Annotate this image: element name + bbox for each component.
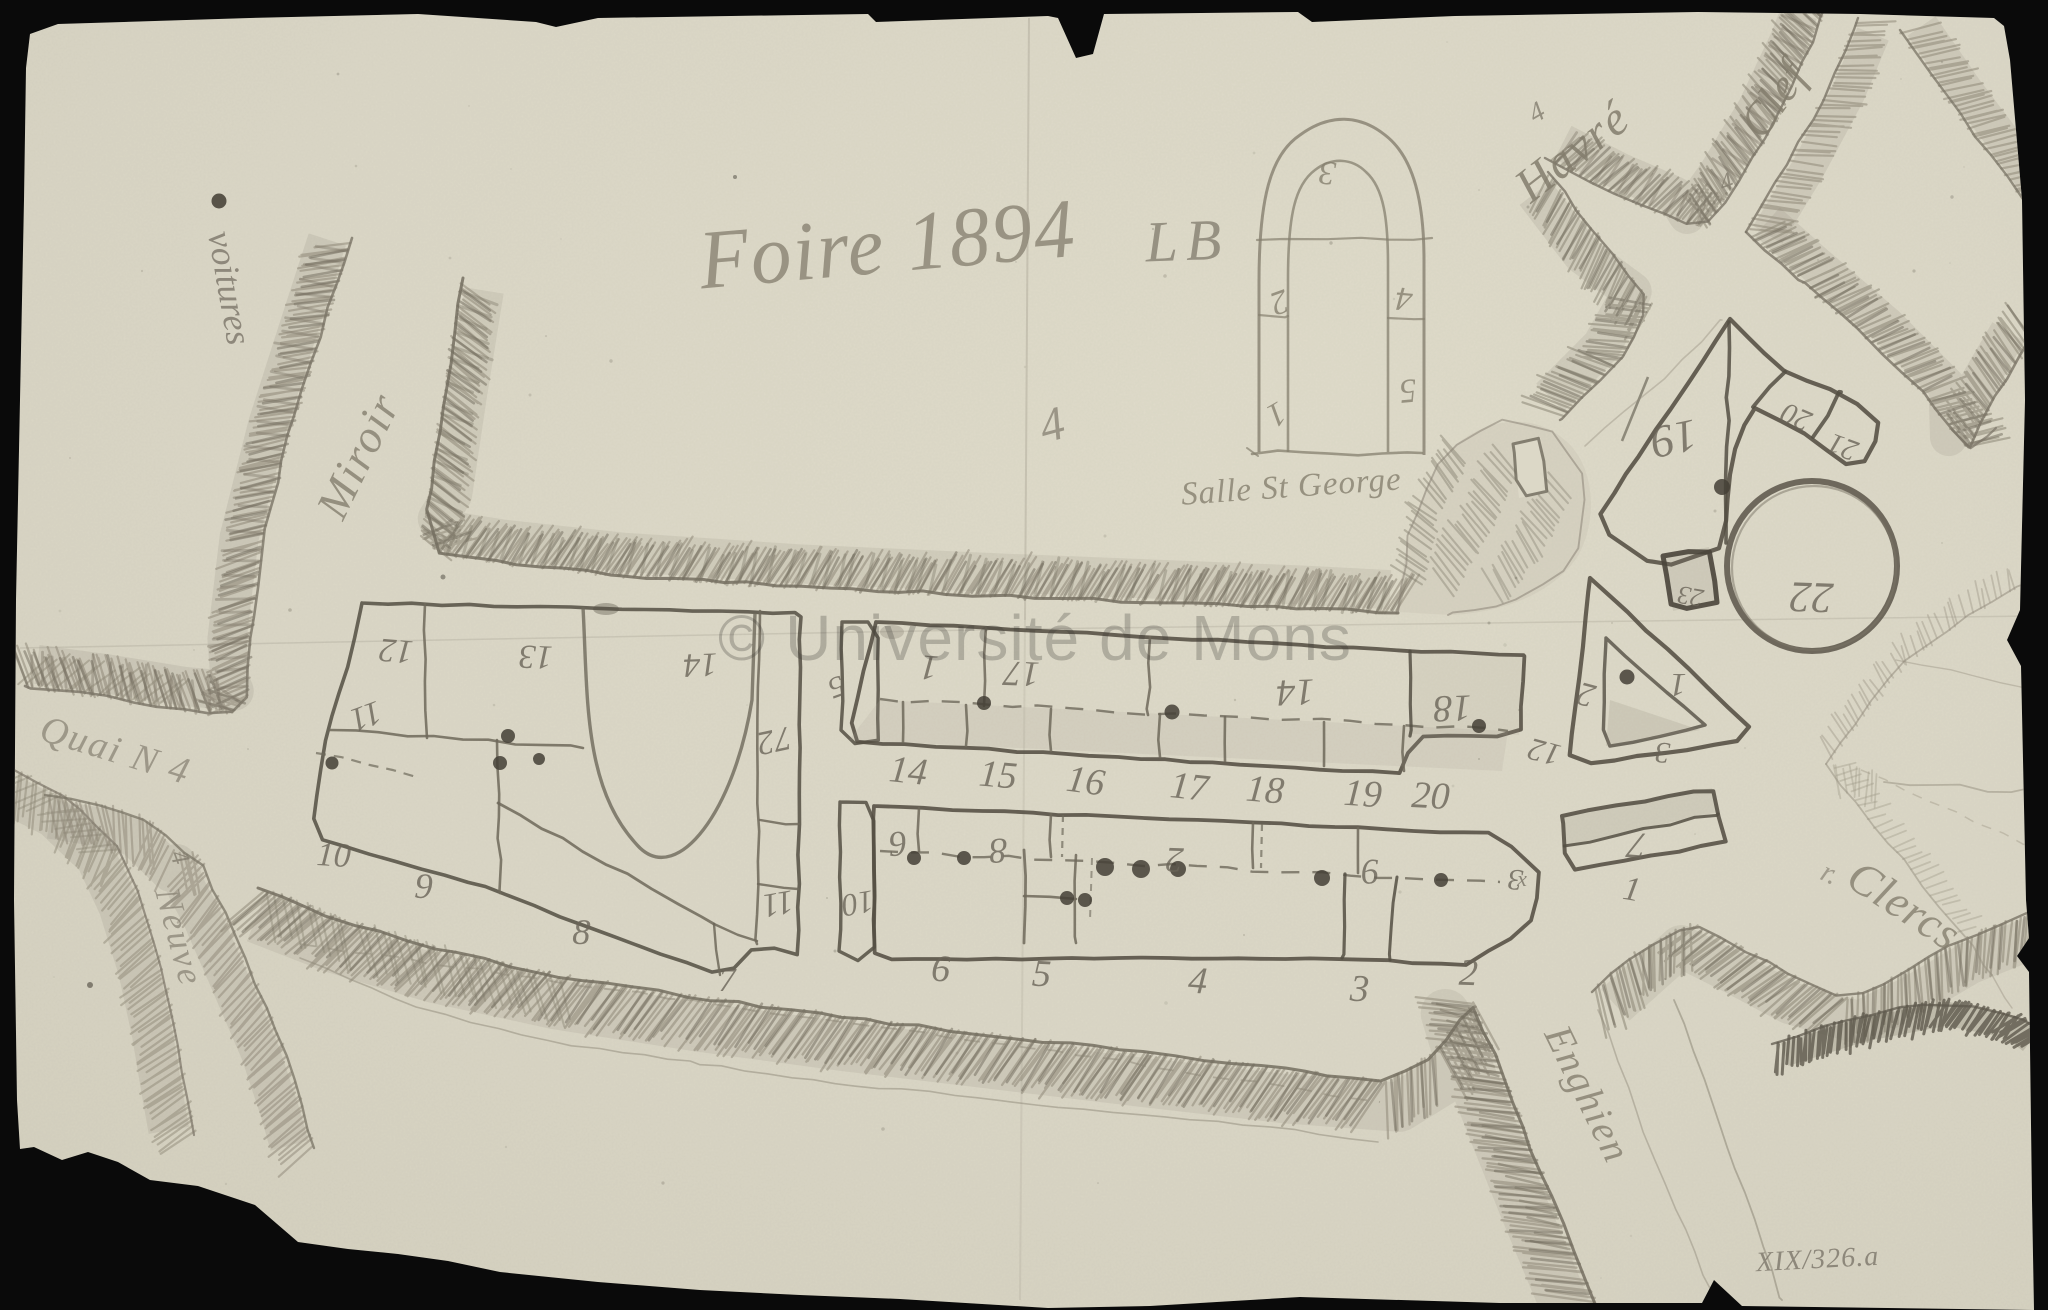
svg-text:7: 7 <box>719 962 738 999</box>
svg-text:18: 18 <box>1244 767 1286 812</box>
svg-text:6: 6 <box>887 823 908 864</box>
svg-text:23: 23 <box>1675 580 1706 613</box>
svg-text:15: 15 <box>977 752 1019 797</box>
svg-text:13: 13 <box>518 637 553 675</box>
svg-text:20: 20 <box>1411 774 1451 818</box>
svg-text:5: 5 <box>1031 953 1052 996</box>
svg-text:8: 8 <box>572 912 591 953</box>
svg-text:9: 9 <box>1361 852 1380 893</box>
svg-text:9: 9 <box>414 866 434 907</box>
svg-text:1: 1 <box>1670 666 1687 703</box>
svg-text:5: 5 <box>1398 371 1418 409</box>
svg-text:4: 4 <box>1187 959 1209 1002</box>
svg-text:4: 4 <box>1394 279 1414 317</box>
svg-text:6: 6 <box>930 947 952 990</box>
svg-text:17: 17 <box>1168 764 1212 810</box>
svg-text:10: 10 <box>839 883 877 924</box>
svg-text:2: 2 <box>1165 840 1184 881</box>
svg-text:© Université de Mons: © Université de Mons <box>718 602 1352 674</box>
svg-text:LB: LB <box>1143 207 1230 275</box>
svg-text:2: 2 <box>1458 952 1478 995</box>
svg-text:19: 19 <box>1342 772 1383 817</box>
svg-text:8: 8 <box>989 831 1008 872</box>
svg-text:11: 11 <box>759 882 796 924</box>
svg-text:3: 3 <box>1348 967 1370 1010</box>
svg-text:16: 16 <box>1064 758 1107 805</box>
svg-text:10: 10 <box>315 836 351 875</box>
svg-text:14: 14 <box>683 645 718 683</box>
svg-text:x: x <box>1516 866 1527 891</box>
svg-text:3: 3 <box>1317 153 1338 191</box>
svg-text:3: 3 <box>1654 736 1672 770</box>
svg-text:14: 14 <box>887 748 929 794</box>
svg-text:XIX/326.a: XIX/326.a <box>1754 1241 1880 1278</box>
svg-text:12: 12 <box>378 631 415 671</box>
svg-text:22: 22 <box>1789 572 1835 623</box>
svg-text:14: 14 <box>1276 670 1315 713</box>
svg-text:18: 18 <box>1433 686 1472 729</box>
